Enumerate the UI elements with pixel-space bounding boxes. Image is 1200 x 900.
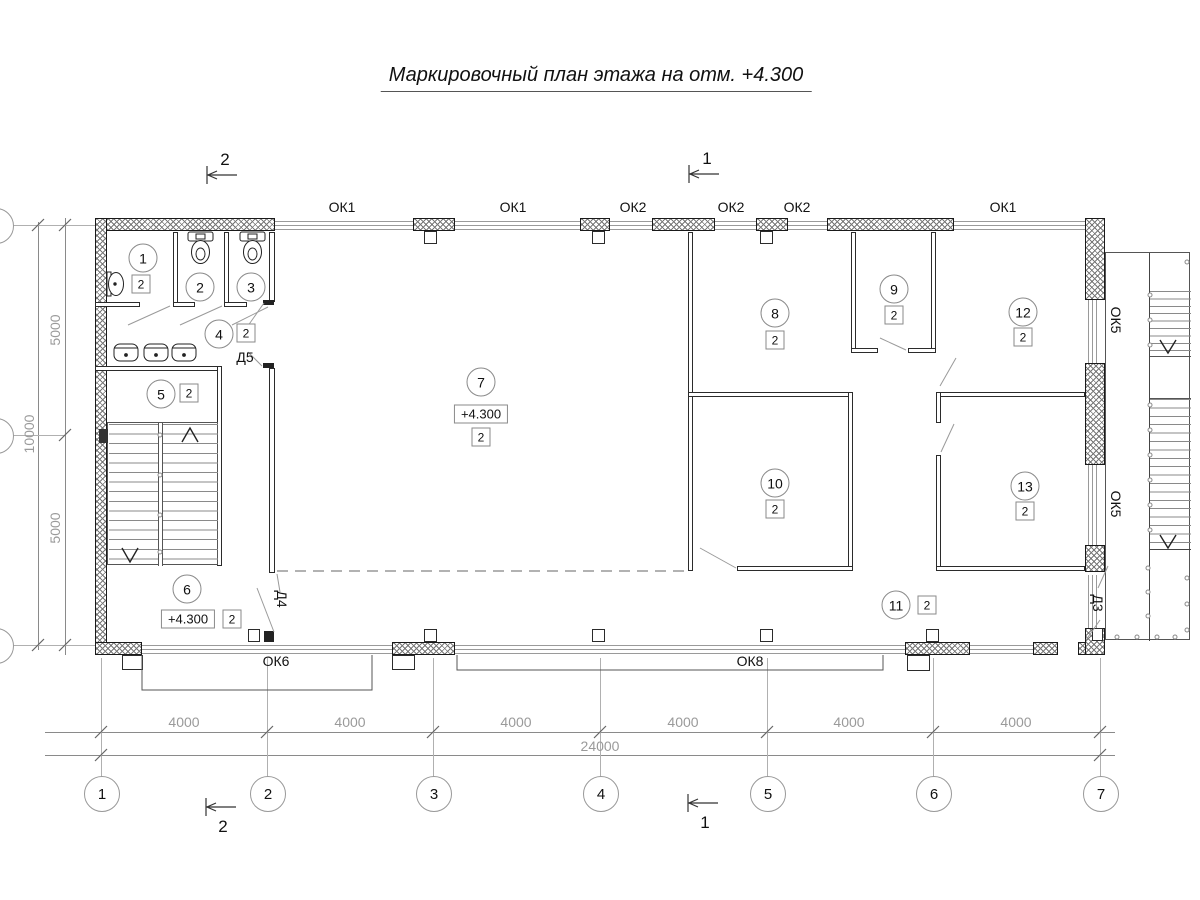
- wall-room13-south: [936, 566, 1085, 571]
- toilet-icon: [188, 232, 213, 264]
- room-number-7: 7: [467, 368, 496, 397]
- grid-axis-2: 2: [250, 776, 286, 812]
- section-mark-2-top: 2: [220, 150, 229, 170]
- room-type-5: 2: [180, 384, 199, 403]
- wall-room8-south: [688, 392, 853, 397]
- wall-room9-jamb-east: [908, 348, 936, 353]
- room-type-10: 2: [766, 500, 785, 519]
- extension-line: [12, 645, 95, 646]
- stair-flight-down: [109, 424, 158, 565]
- stair-exterior-flight-1: [1150, 291, 1191, 357]
- sink-icon: [114, 344, 138, 361]
- door-label-d4: Д4: [274, 590, 290, 607]
- window-band-east-1: [1088, 300, 1097, 363]
- window-label-ok8: ОК8: [737, 653, 764, 669]
- wall-room7-east: [688, 232, 693, 571]
- section-mark-1-bottom: 1: [700, 813, 709, 833]
- column-marker: [248, 629, 260, 642]
- wall-room10-south: [737, 566, 853, 571]
- wall-south-pier: [392, 642, 455, 655]
- room-number-2: 2: [186, 273, 215, 302]
- column-marker: [592, 231, 605, 244]
- porch-outline-ok6: [142, 655, 372, 690]
- room-number-8: 8: [761, 299, 790, 328]
- dim-left-5000-a: 5000: [47, 314, 63, 345]
- room-number-9: 9: [880, 275, 909, 304]
- wall-room12-south: [936, 392, 1085, 397]
- window-label-ok5: ОК5: [1108, 307, 1124, 334]
- dim-left-5000-b: 5000: [47, 512, 63, 543]
- room-type-12: 2: [1014, 328, 1033, 347]
- room-number-10: 10: [761, 469, 790, 498]
- dim-bay-1: 4000: [168, 714, 199, 730]
- room-number-12: 12: [1009, 298, 1038, 327]
- room-number-11: 11: [882, 591, 911, 620]
- room-type-11: 2: [918, 596, 937, 615]
- porch-column: [907, 655, 930, 671]
- wall-wc-south: [173, 302, 195, 307]
- section-mark-2-bottom: 2: [218, 817, 227, 837]
- toilet-icon: [240, 232, 265, 264]
- extension-line: [12, 225, 95, 226]
- grid-axis-row-circle: [0, 418, 14, 454]
- wall-room13-west-upper: [936, 392, 941, 423]
- sink-icon: [144, 344, 168, 361]
- dim-bay-2: 4000: [334, 714, 365, 730]
- grid-axis-5: 5: [750, 776, 786, 812]
- stair-main: [107, 422, 218, 565]
- door-label-d3: Д3: [1090, 594, 1106, 611]
- wall-wc-south: [224, 302, 247, 307]
- wall-north-pier: [652, 218, 715, 231]
- column-marker: [926, 629, 939, 642]
- wall-north-pier: [827, 218, 954, 231]
- room-elevation-6: +4.300: [161, 610, 215, 629]
- room-number-13: 13: [1011, 472, 1040, 501]
- column-marker: [592, 629, 605, 642]
- dim-line-total: [45, 755, 1115, 756]
- wall-north-solid: [95, 218, 275, 231]
- porch-column: [392, 655, 415, 670]
- section-arrow-1-bottom: [688, 794, 718, 812]
- grid-axis-row-circle: [0, 628, 14, 664]
- dim-bay-3: 4000: [500, 714, 531, 730]
- dim-left-10000: 10000: [21, 415, 37, 454]
- column-marker: [760, 629, 773, 642]
- wall-south-pier: [1033, 642, 1058, 655]
- stair-exterior-landing: [1150, 356, 1191, 399]
- wall-room9-east: [931, 232, 936, 350]
- extension-line-grid-2: [267, 658, 268, 777]
- dim-line-left-outer: [38, 222, 39, 650]
- room-type-9: 2: [885, 306, 904, 325]
- dim-bay-6: 4000: [1000, 714, 1031, 730]
- wall-room5-north: [95, 366, 222, 371]
- window-label-ok1: ОК1: [990, 199, 1017, 215]
- grid-axis-3: 3: [416, 776, 452, 812]
- section-mark-1-top: 1: [702, 149, 711, 169]
- sink-icon: [172, 344, 196, 361]
- wall-stall-2-3: [224, 232, 229, 304]
- wall-north-pier: [413, 218, 455, 231]
- stair-exterior-flight-2: [1150, 399, 1191, 549]
- section-arrow-2-bottom: [206, 798, 236, 816]
- stair-flight-up: [163, 424, 218, 565]
- wall-east-pier: [1085, 545, 1105, 572]
- dim-bay-5: 4000: [833, 714, 864, 730]
- wall-room10-east: [848, 392, 853, 571]
- extension-line-grid-5: [767, 658, 768, 777]
- room-number-4: 4: [205, 320, 234, 349]
- room-elevation-7: +4.300: [454, 405, 508, 424]
- wall-east-pier: [1085, 363, 1105, 465]
- window-label-ok5: ОК5: [1108, 491, 1124, 518]
- extension-line-grid-1: [101, 658, 102, 777]
- wall-wc-south: [95, 302, 140, 307]
- wall-stall-1-2: [173, 232, 178, 304]
- door-label-d5: Д5: [236, 349, 253, 365]
- room-type-13: 2: [1016, 502, 1035, 521]
- wall-room9-west: [851, 232, 856, 350]
- stair-arrows: [122, 340, 1176, 562]
- window-label-ok2: ОК2: [784, 199, 811, 215]
- window-label-ok6: ОК6: [263, 653, 290, 669]
- column-marker: [424, 629, 437, 642]
- room-number-6: 6: [173, 575, 202, 604]
- window-label-ok2: ОК2: [718, 199, 745, 215]
- wall-east-pier: [1085, 218, 1105, 300]
- room-number-3: 3: [237, 273, 266, 302]
- dim-line-bays: [45, 732, 1115, 733]
- room-type-6: 2: [223, 610, 242, 629]
- dim-line-left-inner: [65, 218, 66, 655]
- stair-exterior-landing-edge: [1150, 549, 1191, 550]
- wall-room13-west: [936, 455, 941, 568]
- floor-plan-sheet: Маркировочный план этажа на отм. +4.300: [0, 0, 1200, 900]
- wall-south-corner: [95, 642, 142, 655]
- bracket-ok8: [457, 655, 883, 670]
- wall-west: [95, 218, 107, 655]
- grid-axis-1: 1: [84, 776, 120, 812]
- door-jamb-d3: [1092, 628, 1103, 641]
- drawing-title: Маркировочный план этажа на отм. +4.300: [381, 64, 812, 92]
- extension-line-grid-3: [433, 658, 434, 777]
- extension-line-grid-6: [933, 658, 934, 777]
- dim-bay-4: 4000: [667, 714, 698, 730]
- grid-axis-4: 4: [583, 776, 619, 812]
- grid-axis-7: 7: [1083, 776, 1119, 812]
- window-label-ok2: ОК2: [620, 199, 647, 215]
- window-band-east-2: [1088, 465, 1097, 545]
- wall-north-pier: [580, 218, 610, 231]
- porch-column: [122, 655, 143, 670]
- room-type-8: 2: [766, 331, 785, 350]
- extension-line-grid-4: [600, 658, 601, 777]
- wall-room9-jamb-west: [851, 348, 878, 353]
- window-label-ok1: ОК1: [329, 199, 356, 215]
- column-marker: [424, 231, 437, 244]
- window-label-ok1: ОК1: [500, 199, 527, 215]
- room-number-1: 1: [129, 244, 158, 273]
- room-number-5: 5: [147, 380, 176, 409]
- wall-north-pier: [756, 218, 788, 231]
- wall-corridor-west-lower: [269, 368, 275, 573]
- column-marker: [760, 231, 773, 244]
- urinal-icon: [107, 272, 124, 296]
- dim-total: 24000: [581, 738, 620, 754]
- extension-line-grid-7: [1100, 658, 1101, 777]
- extension-line: [12, 435, 65, 436]
- grid-axis-6: 6: [916, 776, 952, 812]
- wall-corridor-west-upper: [269, 232, 275, 302]
- grid-axis-row-circle: [0, 208, 14, 244]
- room-type-4: 2: [237, 324, 256, 343]
- door-jamb-d4: [264, 631, 274, 642]
- room-type-7: 2: [472, 428, 491, 447]
- room-type-1: 2: [132, 275, 151, 294]
- wall-south-pier: [905, 642, 970, 655]
